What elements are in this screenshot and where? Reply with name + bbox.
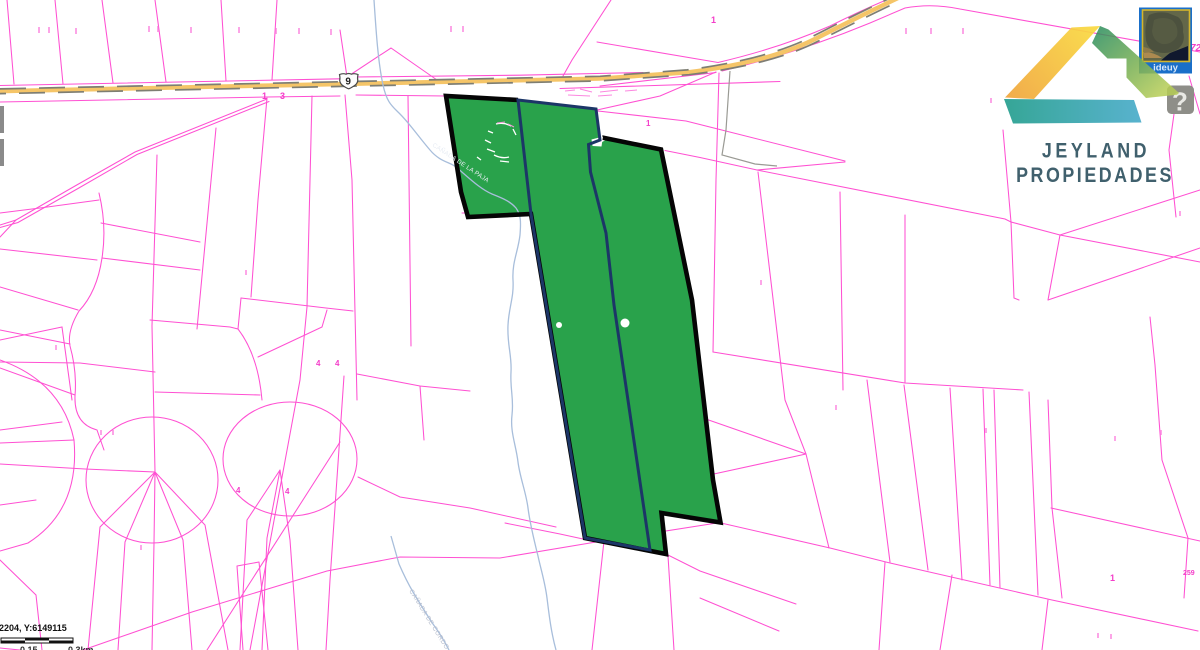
svg-text:1: 1	[711, 15, 716, 25]
svg-text:ideuy: ideuy	[1153, 63, 1179, 74]
svg-text:JEYLAND: JEYLAND	[1042, 139, 1150, 163]
svg-text:1: 1	[262, 91, 267, 101]
svg-text:259: 259	[1183, 570, 1195, 577]
svg-text:4: 4	[335, 359, 340, 368]
svg-text:1: 1	[1110, 573, 1115, 583]
svg-text:1: 1	[646, 119, 651, 128]
svg-text:9: 9	[345, 77, 351, 88]
svg-text:4: 4	[285, 487, 290, 496]
svg-text:0.15: 0.15	[20, 645, 38, 650]
svg-text:2204, Y:6149115: 2204, Y:6149115	[0, 623, 67, 633]
svg-text:4: 4	[316, 359, 321, 368]
svg-text:4: 4	[236, 486, 241, 495]
svg-text:PROPIEDADES: PROPIEDADES	[1016, 164, 1174, 188]
svg-text:3: 3	[280, 91, 285, 101]
svg-text:0.3km: 0.3km	[68, 645, 94, 650]
